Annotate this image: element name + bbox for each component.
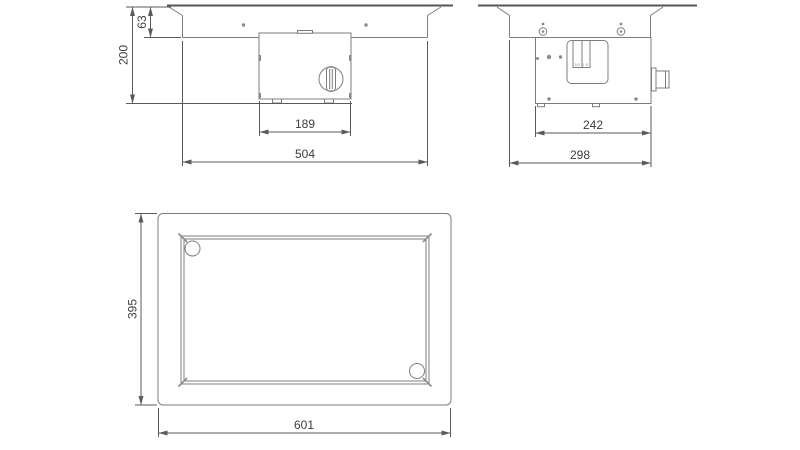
plan-outer-flange [158, 214, 451, 406]
frame-corner-tick [179, 234, 188, 243]
dim-text-mounting-width: 242 [583, 118, 603, 132]
screw-dot [542, 23, 545, 26]
front-control-box-tab [298, 31, 313, 34]
screw-dot [634, 97, 638, 101]
dim-text-control-box-width: 189 [295, 117, 315, 131]
vent-dot [559, 55, 562, 58]
side-body [536, 38, 652, 104]
plan-hole-bottom-right [410, 364, 425, 379]
vent-dot [547, 55, 551, 59]
dim-text-side-overall-depth: 298 [570, 148, 590, 162]
screw-dot [364, 23, 367, 26]
front-foot-tab [325, 99, 334, 103]
plan-view: 395 601 [126, 214, 452, 438]
side-foot-tab [538, 104, 545, 107]
screw-dot [620, 23, 623, 26]
screw-dot [547, 97, 551, 101]
front-foot-tab [273, 99, 282, 103]
dim-text-flange-height: 63 [135, 15, 149, 29]
dim-text-front-overall-width: 504 [295, 147, 315, 161]
dim-text-plan-overall-width: 601 [294, 418, 314, 432]
front-rim-right-chamfer [428, 7, 442, 16]
plan-basin-frame-inner [184, 239, 426, 381]
vent-dot [536, 57, 539, 60]
dim-text-plan-overall-depth: 395 [126, 299, 140, 319]
switch-plate-marks: 10 0 0 [575, 62, 589, 67]
connector-body [656, 71, 669, 88]
plan-basin-frame-outer [181, 236, 429, 384]
screw-center [620, 30, 623, 33]
side-rim-left-chamfer [497, 7, 510, 16]
front-view: 63 200 189 504 [117, 6, 454, 167]
screw-center [542, 30, 545, 33]
plan-hole-top-left [185, 241, 200, 256]
front-rim-left-chamfer [169, 7, 183, 16]
side-foot-tab [593, 104, 600, 107]
side-view: 10 0 0 242 298 [478, 6, 697, 168]
screw-dot [242, 23, 245, 26]
side-rim-right-chamfer [651, 7, 664, 16]
dim-text-total-height: 200 [117, 45, 131, 65]
technical-drawing: 63 200 189 504 10 0 0 [0, 0, 800, 450]
frame-corner-tick [423, 378, 432, 387]
extension-line [536, 106, 652, 167]
frame-corner-tick [179, 378, 188, 387]
connector-flange [652, 68, 657, 91]
frame-corner-tick [423, 234, 432, 243]
